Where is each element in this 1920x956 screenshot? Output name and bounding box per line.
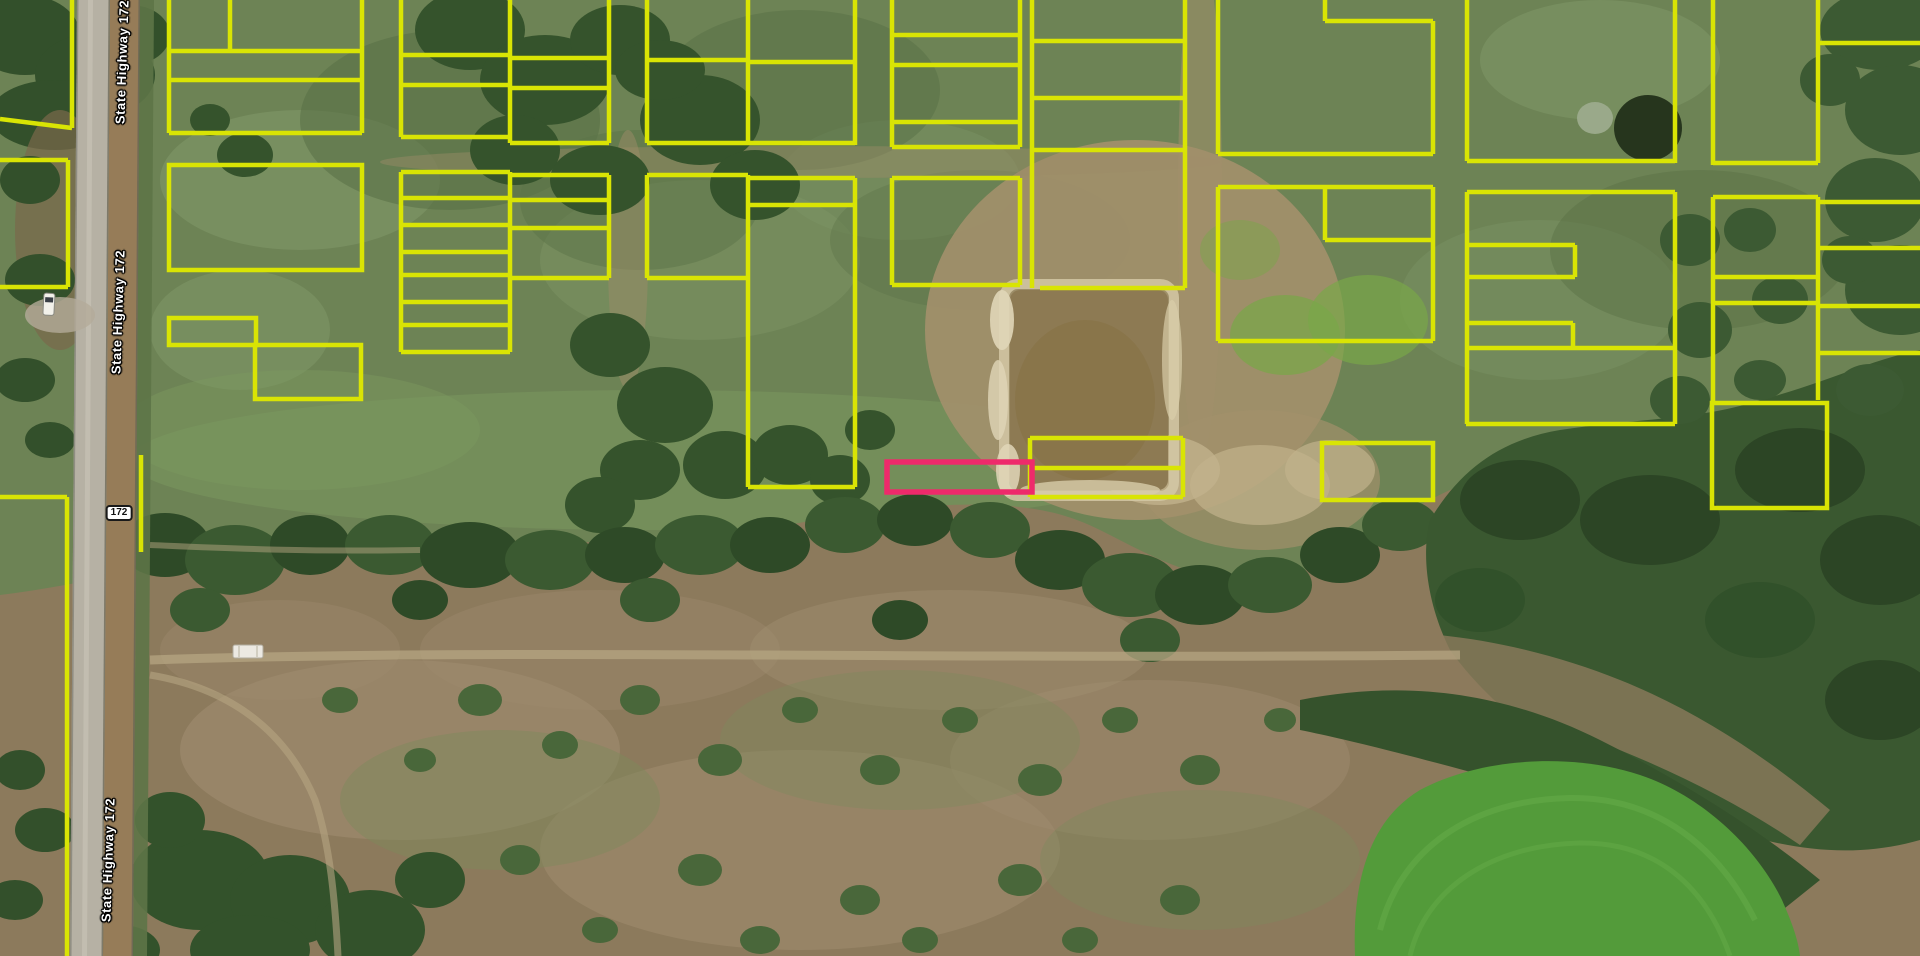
selected-parcel-layer — [887, 462, 1032, 492]
parcel-layer — [0, 0, 1920, 956]
parcel-boundary[interactable] — [1712, 403, 1827, 508]
selected-parcel[interactable] — [887, 462, 1032, 492]
parcel-boundary[interactable] — [255, 345, 361, 399]
highway-shield: 172 — [106, 505, 133, 521]
parcel-boundary[interactable] — [169, 318, 256, 345]
parcel-boundary[interactable] — [169, 165, 362, 270]
parcel-boundary-line[interactable] — [0, 119, 72, 128]
parcel-overlay — [0, 0, 1920, 956]
highway-shield-number: 172 — [111, 507, 128, 519]
map-viewport[interactable]: State Highway 172State Highway 172State … — [0, 0, 1920, 956]
parcel-boundary[interactable] — [1322, 443, 1433, 500]
